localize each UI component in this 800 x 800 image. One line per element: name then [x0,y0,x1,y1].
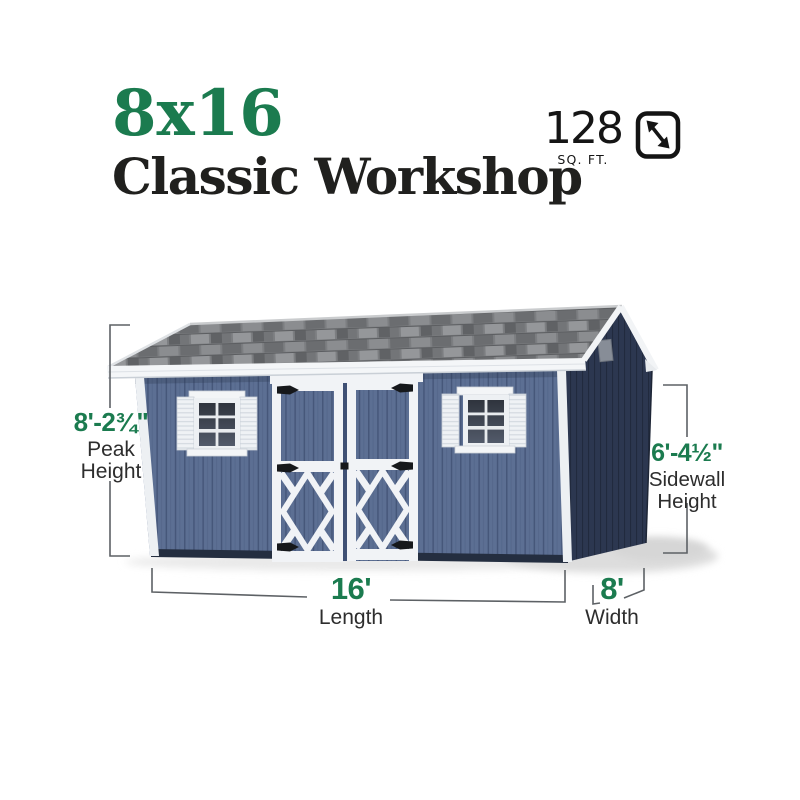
right-window [442,387,526,453]
width-dimension: 8' Width [584,573,640,629]
sidewall-height-dimension: 6'-4½" Sidewall Height [630,440,744,512]
left-window-right-shutter [240,397,257,450]
gable-vent [598,339,613,361]
sidewall-height-value: 6'-4½" [630,440,744,466]
shed-illustration [0,0,800,800]
peak-height-label: Peak Height [54,439,168,483]
left-window-left-shutter [177,397,194,450]
left-window [177,391,257,456]
door-latch [341,463,349,470]
width-label: Width [584,607,640,629]
right-window-left-shutter [442,394,459,447]
roof [107,306,657,378]
right-door [347,381,418,561]
peak-height-value: 8'-2¾" [54,409,168,436]
left-door [272,382,343,562]
length-dimension: 16' Length [296,573,406,629]
shed-product-dimension-card: 8x16 Classic Workshop 128 SQ. FT. [0,0,800,800]
door-center-gap [343,383,347,561]
length-value: 16' [296,573,406,606]
sidewall-height-label: Sidewall Height [630,469,744,512]
double-door [270,365,423,562]
right-window-right-shutter [509,394,526,447]
peak-height-dimension: 8'-2¾" Peak Height [54,409,168,483]
width-value: 8' [584,573,640,606]
length-label: Length [296,607,406,629]
